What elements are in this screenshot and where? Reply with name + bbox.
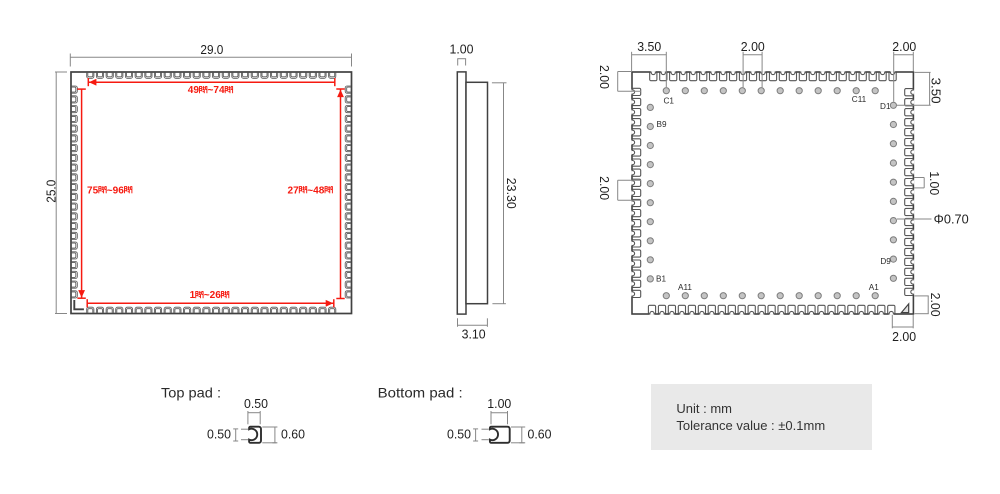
svg-text:C11: C11 [852,95,867,104]
svg-text:D9: D9 [880,257,891,266]
svg-text:Φ0.70: Φ0.70 [934,212,969,226]
svg-text:75: 75 [87,185,99,196]
svg-text:B9: B9 [657,120,667,129]
svg-text:1.00: 1.00 [450,43,474,57]
svg-text:~26: ~26 [204,290,222,301]
svg-text:3.50: 3.50 [929,78,943,104]
svg-text:0.50: 0.50 [207,428,231,442]
svg-text:1.00: 1.00 [487,397,511,411]
svg-text:2.00: 2.00 [741,40,765,54]
svg-text:Unit : mm: Unit : mm [676,401,732,416]
svg-text:Tolerance value : ±0.1mm: Tolerance value : ±0.1mm [676,418,825,433]
svg-text:2.00: 2.00 [928,293,942,317]
svg-text:3.50: 3.50 [637,40,661,54]
svg-text:2.00: 2.00 [597,65,611,89]
svg-text:A11: A11 [678,283,692,292]
svg-text:0.50: 0.50 [244,397,268,411]
svg-text:~48: ~48 [307,185,325,196]
svg-text:49: 49 [188,85,200,96]
svg-text:B1: B1 [656,275,666,284]
svg-text:~96: ~96 [107,185,125,196]
svg-text:2.00: 2.00 [892,40,916,54]
svg-text:C1: C1 [664,97,675,106]
svg-text:29.0: 29.0 [200,43,223,57]
svg-text:Top pad :: Top pad : [161,384,221,400]
svg-text:0.60: 0.60 [528,428,552,442]
svg-text:2.00: 2.00 [892,330,916,344]
svg-text:D1: D1 [880,102,891,111]
svg-text:1.00: 1.00 [927,171,941,195]
svg-text:Bottom pad :: Bottom pad : [378,384,463,400]
svg-text:2.00: 2.00 [597,176,611,200]
svg-text:A1: A1 [869,283,879,292]
svg-text:0.60: 0.60 [281,428,305,442]
svg-text:0.50: 0.50 [447,428,471,442]
svg-text:27: 27 [288,185,300,196]
svg-text:~74: ~74 [208,85,226,96]
svg-text:1: 1 [190,290,196,301]
svg-text:3.10: 3.10 [462,328,486,342]
svg-text:23.30: 23.30 [504,178,518,209]
svg-text:25.0: 25.0 [45,180,59,203]
